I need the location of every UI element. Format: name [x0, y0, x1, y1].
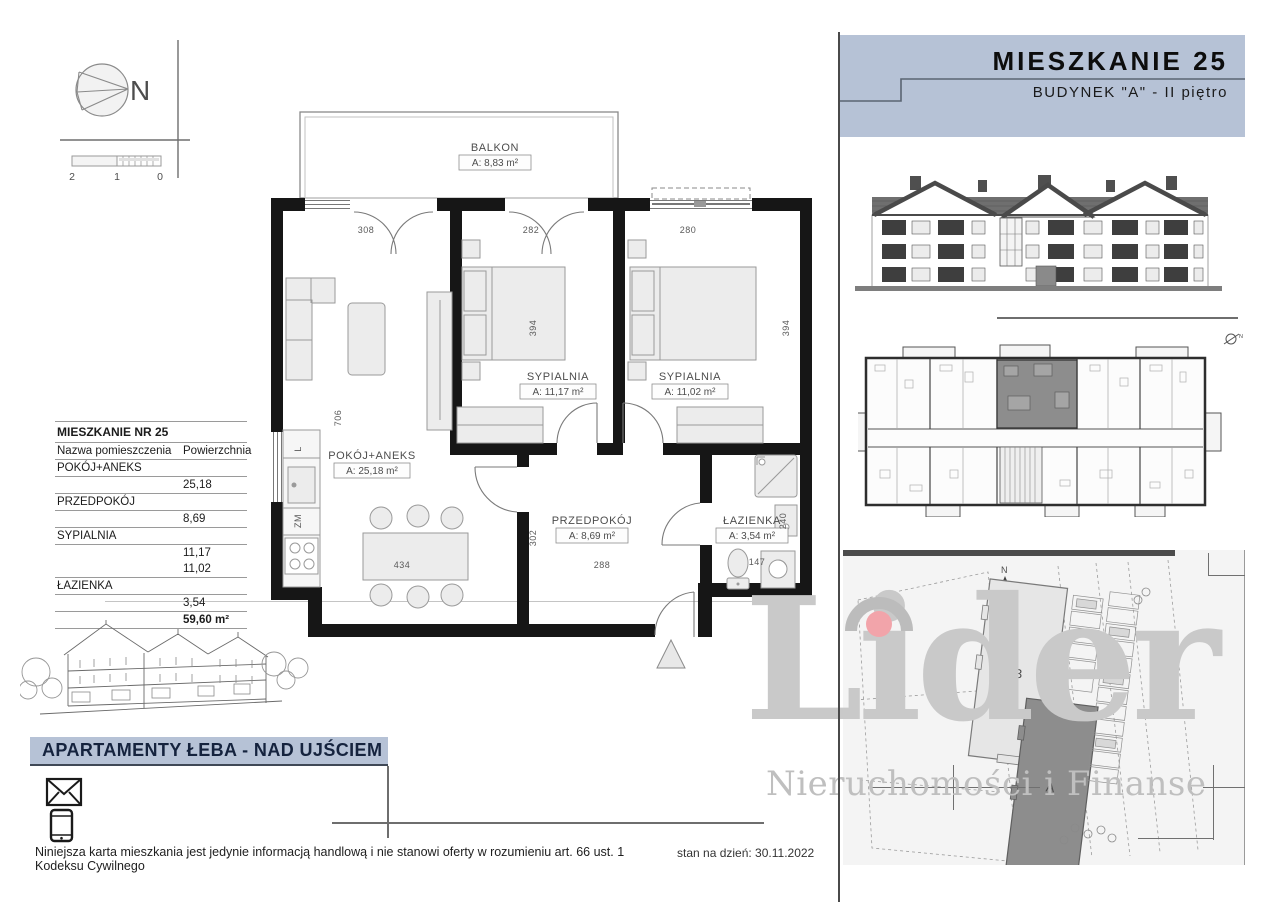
- room-label-przedpokoj: PRZEDPOKÓJ A: 8,69 m²: [552, 514, 633, 543]
- dim-434: 434: [394, 560, 411, 570]
- svg-text:POKÓJ+ANEKS: POKÓJ+ANEKS: [328, 449, 416, 462]
- compass-and-scalebar: N 2 1 0: [48, 30, 213, 190]
- unit-title: MIESZKANIE 25: [993, 46, 1229, 77]
- coffee-table-icon: [348, 303, 385, 375]
- room-label-sypialnia-1: SYPIALNIA A: 11,17 m²: [520, 371, 596, 399]
- room-label-pokoj-aneks: POKÓJ+ANEKS A: 25,18 m²: [328, 449, 416, 478]
- svg-text:A: 11,02 m²: A: 11,02 m²: [665, 387, 717, 398]
- french-balcony-railing: [652, 188, 750, 207]
- frame-line-vertical: [387, 766, 389, 838]
- compass-north-label: N: [130, 75, 150, 106]
- siteplan-north-label: N: [1001, 565, 1008, 575]
- bracket-line: [1208, 553, 1209, 575]
- divider-line-under-elevation: [997, 317, 1238, 319]
- footer-disclaimer: Niniejsza karta mieszkania jest jedynie …: [35, 845, 675, 873]
- scale-label-2: 2: [69, 171, 75, 183]
- building-b-label: B: [1013, 666, 1023, 682]
- floorplan-drawing: L ZM BA: [255, 95, 830, 710]
- registration-mark: [870, 787, 1040, 788]
- col-header-area: Powierzchnia: [183, 445, 247, 457]
- sofa-icon: [286, 278, 335, 380]
- building-perspective-sketch: [20, 602, 320, 737]
- svg-text:A: 25,18 m²: A: 25,18 m²: [346, 466, 398, 477]
- table-title: MIESZKANIE NR 25: [55, 422, 247, 443]
- dim-394-left: 394: [528, 320, 538, 337]
- ground-line: [855, 286, 1222, 291]
- floor-overview-plan: [858, 342, 1230, 517]
- table-row-value: 11,02: [55, 561, 247, 578]
- svg-text:A: 8,69 m²: A: 8,69 m²: [569, 531, 616, 542]
- bed-icon: [628, 240, 756, 380]
- project-title-strip: APARTAMENTY ŁEBA - NAD UJŚCIEM: [30, 737, 388, 766]
- svg-text:A: 11,17 m²: A: 11,17 m²: [533, 387, 585, 398]
- svg-text:SYPIALNIA: SYPIALNIA: [659, 371, 721, 383]
- dim-147: 147: [749, 557, 766, 567]
- building-elevation-drawing: [855, 175, 1227, 295]
- project-title: APARTAMENTY ŁEBA - NAD UJŚCIEM: [30, 740, 382, 761]
- mini-north-label: N: [1239, 334, 1243, 340]
- frame-line-horizontal: [332, 822, 764, 824]
- shower-icon: [755, 455, 797, 497]
- phone-icon: [48, 808, 76, 844]
- kitchen-counter: [283, 430, 320, 587]
- room-label-balkon: BALKON A: 8,83 m²: [459, 142, 531, 170]
- svg-text:A: 3,54 m²: A: 3,54 m²: [729, 531, 776, 542]
- stairwell: [1000, 447, 1042, 503]
- table-row: ŁAZIENKA: [55, 578, 247, 595]
- registration-mark: [1213, 765, 1214, 840]
- footer-status-date: stan na dzień: 30.11.2022: [677, 846, 814, 860]
- svg-text:SYPIALNIA: SYPIALNIA: [527, 371, 589, 383]
- dim-706: 706: [333, 410, 343, 427]
- unit-header-band: MIESZKANIE 25 BUDYNEK "A" - II piętro: [840, 35, 1245, 137]
- siteplan-drawing: N B A: [843, 556, 1245, 865]
- envelope-icon: [44, 775, 84, 809]
- stove-icon: [285, 538, 318, 574]
- scale-bar: [72, 156, 161, 166]
- dim-302: 302: [528, 530, 538, 547]
- table-row-value: 25,18: [55, 477, 247, 494]
- window-left: [272, 432, 283, 502]
- window-top: [305, 199, 350, 210]
- entrance-marker: [657, 640, 685, 668]
- dim-280: 280: [680, 225, 697, 235]
- col-header-name: Nazwa pomieszczenia: [57, 445, 171, 457]
- table-row-value: 8,69: [55, 511, 247, 528]
- toilet-icon: [727, 549, 749, 589]
- registration-mark: [1203, 787, 1245, 788]
- kitchen-fridge-label: L: [293, 446, 303, 452]
- scale-label-1: 1: [114, 171, 120, 183]
- unit-subtitle: BUDYNEK "A" - II piętro: [1033, 84, 1228, 101]
- table-row-value: 11,17: [55, 545, 247, 561]
- dim-240: 240: [778, 513, 788, 530]
- table-row: PRZEDPOKÓJ: [55, 494, 247, 511]
- table-row: SYPIALNIA: [55, 528, 247, 545]
- svg-text:ŁAZIENKA: ŁAZIENKA: [723, 515, 781, 527]
- svg-text:PRZEDPOKÓJ: PRZEDPOKÓJ: [552, 514, 633, 527]
- scale-label-0: 0: [157, 171, 163, 183]
- table-header-row: Nazwa pomieszczenia Powierzchnia: [55, 443, 247, 460]
- table-row: POKÓJ+ANEKS: [55, 460, 247, 477]
- tree-sketch: [20, 652, 308, 699]
- registration-mark: [1138, 838, 1213, 839]
- dim-282: 282: [523, 225, 540, 235]
- dining-table-icon: [363, 505, 468, 608]
- svg-text:BALKON: BALKON: [471, 142, 519, 154]
- north-compass-icon: [76, 64, 128, 116]
- dim-288: 288: [594, 560, 611, 570]
- tv-cabinet-icon: [427, 292, 452, 430]
- panel-divider-line: [838, 32, 840, 902]
- dim-308: 308: [358, 225, 375, 235]
- svg-text:A: 8,83 m²: A: 8,83 m²: [472, 158, 519, 169]
- washing-machine-icon: [761, 551, 795, 588]
- room-label-sypialnia-2: SYPIALNIA A: 11,02 m²: [652, 371, 728, 399]
- bracket-line: [1208, 575, 1245, 576]
- dim-394-right: 394: [781, 320, 791, 337]
- bed-icon: [462, 240, 565, 380]
- room-area-table: MIESZKANIE NR 25 Nazwa pomieszczenia Pow…: [55, 421, 247, 629]
- kitchen-dishwasher-label: ZM: [293, 514, 303, 528]
